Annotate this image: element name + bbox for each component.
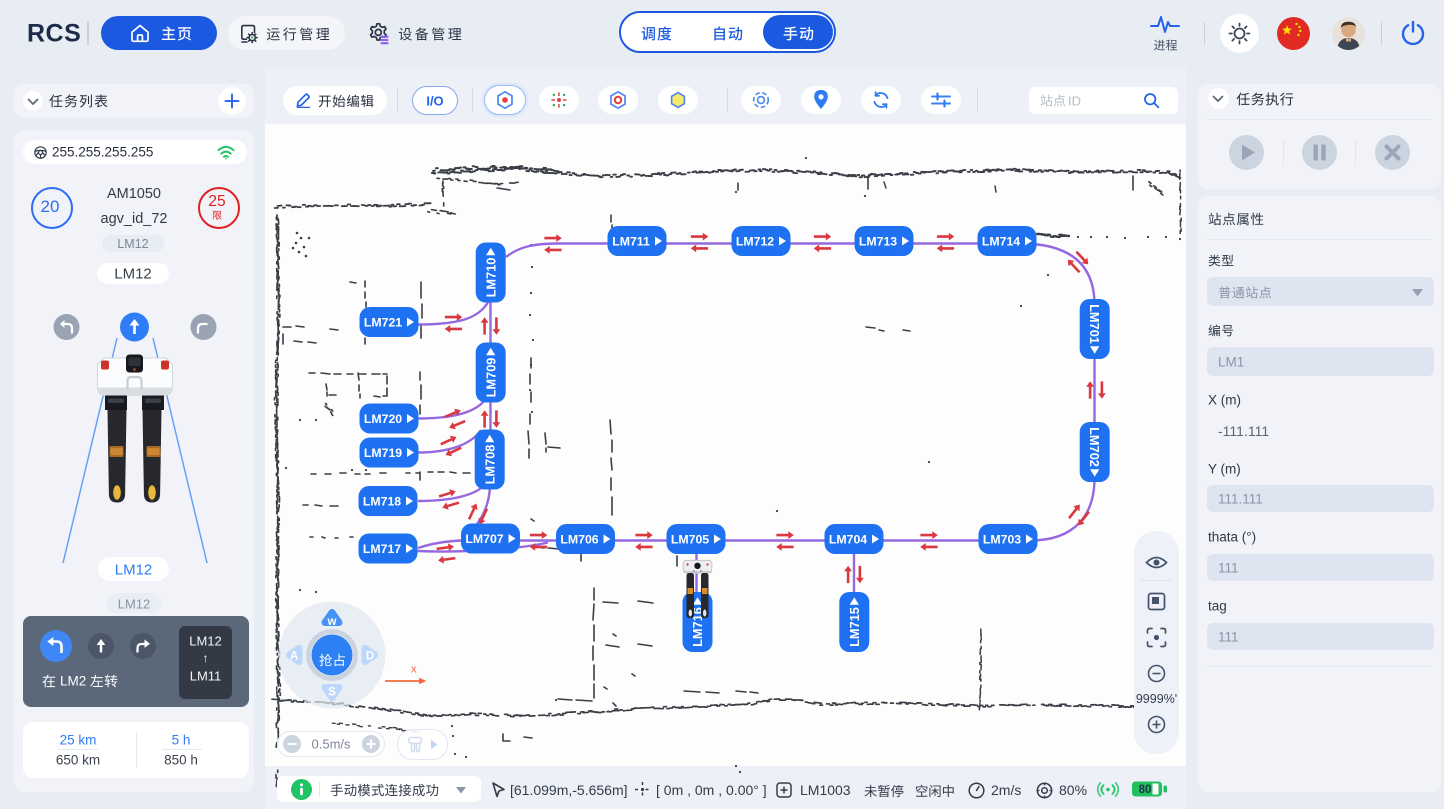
svg-text:LM710: LM710 — [483, 258, 498, 298]
svg-text:LM717: LM717 — [363, 542, 401, 556]
svg-text:LM702: LM702 — [1087, 427, 1102, 467]
svg-text:D: D — [366, 651, 374, 663]
svg-text:LM709: LM709 — [483, 358, 498, 398]
svg-text:LM711: LM711 — [612, 234, 650, 248]
svg-text:LM712: LM712 — [736, 234, 774, 248]
svg-text:A: A — [290, 651, 298, 663]
svg-text:LM707: LM707 — [465, 532, 503, 546]
svg-text:LM703: LM703 — [983, 532, 1021, 546]
svg-text:S: S — [328, 687, 336, 699]
svg-text:LM721: LM721 — [364, 315, 402, 329]
svg-text:LM713: LM713 — [859, 234, 897, 248]
svg-text:LM708: LM708 — [482, 445, 497, 485]
svg-text:LM704: LM704 — [829, 532, 867, 546]
svg-text:LM705: LM705 — [671, 532, 709, 546]
svg-text:LM718: LM718 — [363, 494, 401, 508]
svg-text:w: w — [327, 616, 337, 628]
svg-text:LM701: LM701 — [1087, 304, 1102, 344]
svg-text:LM706: LM706 — [560, 532, 598, 546]
svg-text:80: 80 — [1139, 784, 1152, 796]
svg-text:LM715: LM715 — [847, 607, 862, 647]
svg-text:LM714: LM714 — [982, 234, 1020, 248]
svg-text:LM719: LM719 — [364, 446, 402, 460]
svg-text:LM720: LM720 — [364, 412, 402, 426]
svg-text:x: x — [411, 664, 417, 676]
